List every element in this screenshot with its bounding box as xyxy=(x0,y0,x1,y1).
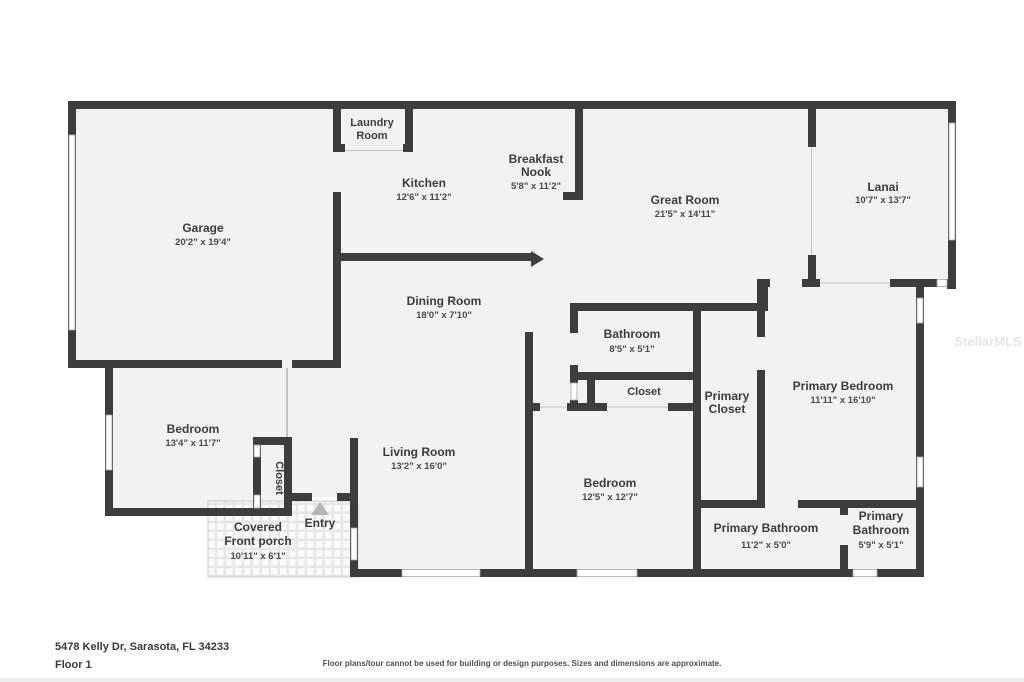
svg-text:5'9" x 5'1": 5'9" x 5'1" xyxy=(858,540,903,551)
svg-text:Closet: Closet xyxy=(273,461,285,495)
bottom-strip xyxy=(0,678,1024,682)
svg-text:5'8" x 11'2": 5'8" x 11'2" xyxy=(511,181,561,192)
room-label-living-room: Living Room 13'2" x 16'0" xyxy=(383,445,456,472)
svg-text:8'5" x 5'1": 8'5" x 5'1" xyxy=(609,344,654,355)
room-label-entry: Entry xyxy=(305,516,336,530)
svg-text:Room: Room xyxy=(356,130,387,142)
svg-text:Laundry: Laundry xyxy=(350,117,394,129)
room-label-hall-closet: Closet xyxy=(627,386,661,398)
room-label-dining-room: Dining Room 18'0" x 7'10" xyxy=(407,294,482,321)
svg-text:Primary Bathroom: Primary Bathroom xyxy=(714,521,819,535)
svg-text:11'2" x 5'0": 11'2" x 5'0" xyxy=(741,540,791,551)
address-text: 5478 Kelly Dr, Sarasota, FL 34233 xyxy=(55,641,229,653)
svg-text:Bathroom: Bathroom xyxy=(604,327,661,341)
floor-plan-canvas: Garage 20'2" x 19'4" Laundry Room Kitche… xyxy=(0,0,1024,682)
svg-text:10'7" x 13'7": 10'7" x 13'7" xyxy=(855,195,911,206)
room-label-primary-bathroom-2: Primary Bathroom 5'9" x 5'1" xyxy=(853,509,910,551)
svg-text:Primary Bedroom: Primary Bedroom xyxy=(793,379,894,393)
svg-text:Kitchen: Kitchen xyxy=(402,176,446,190)
room-label-great-room: Great Room 21'5" x 14'11" xyxy=(651,193,720,220)
svg-text:Dining Room: Dining Room xyxy=(407,294,482,308)
room-label-bedroom-center: Bedroom 12'5" x 12'7" xyxy=(582,476,638,503)
mls-watermark: StellarMLS xyxy=(954,334,1022,349)
svg-text:Covered: Covered xyxy=(234,520,282,534)
svg-text:10'11" x 6'1": 10'11" x 6'1" xyxy=(230,551,285,562)
room-label-bedroom-left: Bedroom 13'4" x 11'7" xyxy=(165,422,220,449)
svg-text:Living Room: Living Room xyxy=(383,445,456,459)
svg-text:11'11" x 16'10": 11'11" x 16'10" xyxy=(810,395,875,406)
svg-text:Primary: Primary xyxy=(705,389,750,403)
svg-text:13'2" x 16'0": 13'2" x 16'0" xyxy=(391,461,447,472)
svg-text:12'5" x 12'7": 12'5" x 12'7" xyxy=(582,492,638,503)
svg-text:Lanai: Lanai xyxy=(867,180,898,194)
floor-label: Floor 1 xyxy=(55,659,92,671)
svg-text:Nook: Nook xyxy=(521,165,551,179)
room-label-kitchen: Kitchen 12'6" x 11'2" xyxy=(396,176,451,203)
svg-text:Bedroom: Bedroom xyxy=(584,476,637,490)
svg-text:18'0" x 7'10": 18'0" x 7'10" xyxy=(416,310,472,321)
svg-text:20'2" x 19'4": 20'2" x 19'4" xyxy=(175,237,231,248)
svg-text:Bathroom: Bathroom xyxy=(853,523,910,537)
room-label-primary-closet: Primary Closet xyxy=(705,389,750,416)
room-label-porch: Covered Front porch 10'11" x 6'1" xyxy=(224,520,291,562)
svg-text:Entry: Entry xyxy=(305,516,336,530)
svg-text:Front porch: Front porch xyxy=(224,534,291,548)
svg-text:Closet: Closet xyxy=(627,386,661,398)
floor-plan-page: Garage 20'2" x 19'4" Laundry Room Kitche… xyxy=(0,0,1024,682)
svg-text:21'5" x 14'11": 21'5" x 14'11" xyxy=(655,209,716,220)
disclaimer-text: Floor plans/tour cannot be used for buil… xyxy=(323,659,722,668)
room-label-garage: Garage 20'2" x 19'4" xyxy=(175,221,231,248)
svg-text:Great Room: Great Room xyxy=(651,193,720,207)
svg-text:Closet: Closet xyxy=(709,402,746,416)
svg-text:13'4" x 11'7": 13'4" x 11'7" xyxy=(165,438,220,449)
svg-text:12'6" x 11'2": 12'6" x 11'2" xyxy=(396,192,451,203)
room-label-bedroom-closet: Closet xyxy=(273,461,285,495)
svg-text:Bedroom: Bedroom xyxy=(167,422,220,436)
svg-text:Primary: Primary xyxy=(859,509,904,523)
svg-text:Garage: Garage xyxy=(182,221,224,235)
footer: 5478 Kelly Dr, Sarasota, FL 34233 Floor … xyxy=(0,641,1024,682)
svg-text:Breakfast: Breakfast xyxy=(509,152,564,166)
